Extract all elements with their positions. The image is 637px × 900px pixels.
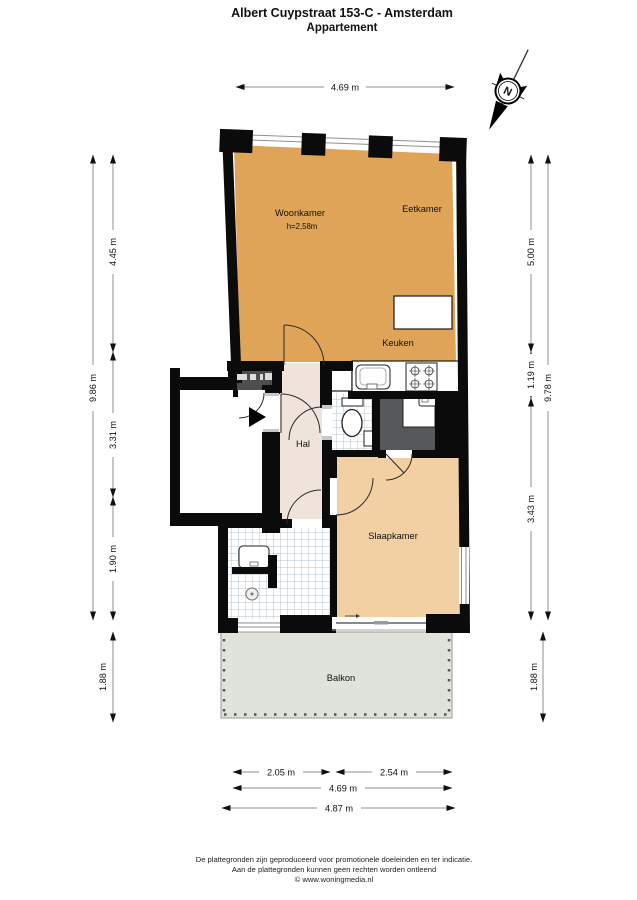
dim-left-1: 4.45 m bbox=[108, 238, 118, 266]
front-door-opening bbox=[263, 394, 279, 432]
wall-segment bbox=[320, 361, 332, 408]
footer: De plattegronden zijn geproduceerd voor … bbox=[196, 855, 473, 884]
dim-right-total: 9.78 m bbox=[543, 374, 553, 402]
wall-segment bbox=[218, 618, 238, 633]
bedroom-side-window bbox=[459, 547, 469, 604]
dim-bottom-right: 2.54 m bbox=[380, 768, 408, 778]
balkon-label: Balkon bbox=[327, 673, 355, 683]
dim-top: 4.69 m bbox=[331, 83, 359, 93]
page-subtitle: Appartement bbox=[307, 22, 378, 34]
floorplan-canvas: Albert Cuypstraat 153-C - Amsterdam Appa… bbox=[0, 0, 637, 900]
door-jamb bbox=[263, 393, 279, 396]
wall-segment bbox=[330, 515, 337, 625]
wall-segment bbox=[378, 450, 386, 458]
shower-drain-icon bbox=[246, 588, 258, 600]
slaapkamer-label: Slaapkamer bbox=[368, 531, 418, 541]
toilet-sink bbox=[364, 431, 373, 446]
wall-segment bbox=[372, 393, 380, 455]
dim-left-total: 9.86 m bbox=[88, 374, 98, 402]
dim-right-2: 1.19 m bbox=[526, 361, 536, 389]
dim-bottom-left: 2.05 m bbox=[267, 768, 295, 778]
dim-left-2: 3.31 m bbox=[108, 421, 118, 449]
shower-room-door-opening bbox=[386, 450, 412, 458]
wall-segment bbox=[435, 393, 460, 452]
door-jamb bbox=[322, 405, 332, 409]
bedroom-door-opening bbox=[330, 478, 337, 515]
partial-wall bbox=[268, 555, 277, 588]
wall-segment bbox=[218, 519, 228, 624]
dim-right-1: 5.00 m bbox=[526, 238, 536, 266]
wall-segment bbox=[170, 368, 180, 525]
dim-right-balcony: 1.88 m bbox=[529, 663, 539, 691]
ceiling-height-label: h=2,58m bbox=[287, 222, 318, 231]
hal-label: Hal bbox=[296, 439, 310, 449]
dim-left-3: 1.90 m bbox=[108, 545, 118, 573]
wall-segment bbox=[280, 615, 336, 633]
needle-south-tip bbox=[483, 101, 507, 133]
floorplan-page: Albert Cuypstraat 153-C - Amsterdam Appa… bbox=[0, 0, 637, 900]
dim-left-balcony: 1.88 m bbox=[98, 663, 108, 691]
footer-disclaimer-2: Aan de plattegronden kunnen geen rechten… bbox=[232, 865, 436, 874]
wall-segment bbox=[322, 519, 337, 528]
sink-faucet-icon bbox=[367, 384, 377, 389]
page-title: Albert Cuypstraat 153-C - Amsterdam bbox=[231, 6, 453, 20]
wall-segment bbox=[301, 133, 326, 156]
meter-symbols bbox=[237, 373, 272, 380]
door-jamb bbox=[263, 429, 279, 432]
dim-bottom-inner: 4.69 m bbox=[329, 784, 357, 794]
meter-closet-door-opening bbox=[238, 390, 265, 398]
bathroom-door-opening bbox=[292, 519, 322, 528]
wall-segment bbox=[426, 614, 466, 633]
eetkamer-label: Eetkamer bbox=[402, 204, 442, 214]
woonkamer-label: Woonkamer bbox=[275, 208, 325, 218]
wall-segment bbox=[332, 450, 380, 457]
wall-segment bbox=[368, 135, 393, 158]
bathroom-window bbox=[238, 620, 280, 630]
door-jamb bbox=[322, 436, 332, 440]
wall-segment bbox=[262, 432, 280, 533]
wall-segment bbox=[330, 452, 337, 478]
footer-credit: © www.woningmedia.nl bbox=[295, 875, 374, 884]
bath-washbasin-icon bbox=[239, 546, 269, 568]
wall-segment bbox=[218, 519, 292, 528]
stove-icon bbox=[406, 363, 437, 391]
dim-bottom-outer: 4.87 m bbox=[325, 804, 353, 814]
footer-disclaimer-1: De plattegronden zijn geproduceerd voor … bbox=[196, 855, 473, 864]
dim-right-3: 3.43 m bbox=[526, 495, 536, 523]
wall-segment bbox=[272, 361, 282, 393]
toilet-icon bbox=[342, 398, 363, 437]
kitchen-island bbox=[394, 296, 452, 329]
keuken-label: Keuken bbox=[382, 338, 414, 348]
compass-icon: N bbox=[473, 42, 544, 138]
